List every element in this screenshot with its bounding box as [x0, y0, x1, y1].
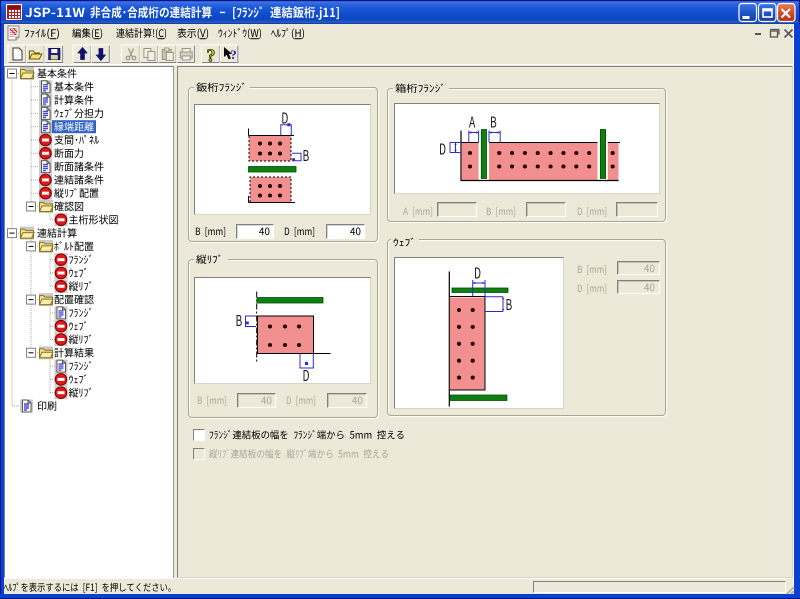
svg-text:?: ? [230, 47, 237, 62]
svg-text:?: ? [207, 46, 216, 66]
